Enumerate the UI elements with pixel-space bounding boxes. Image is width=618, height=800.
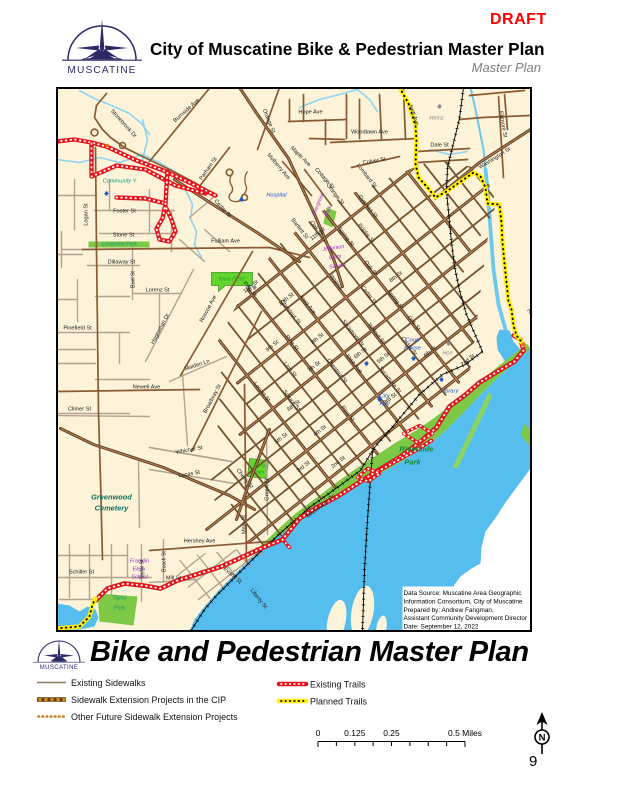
svg-text:Green St: Green St <box>265 478 271 501</box>
svg-text:Other Future Sidewalk Extensio: Other Future Sidewalk Extension Projects <box>71 712 238 722</box>
svg-text:Pinefield St: Pinefield St <box>63 326 92 332</box>
svg-text:Mill St: Mill St <box>166 576 182 582</box>
svg-text:Longview Park: Longview Park <box>102 242 138 248</box>
svg-text:Schiller St: Schiller St <box>69 570 95 576</box>
svg-text:Data Source: Muscatine Area Ge: Data Source: Muscatine Area Geographic <box>404 590 523 597</box>
svg-text:Dale St: Dale St <box>430 143 449 149</box>
svg-text:Sidewalk Extension Projects in: Sidewalk Extension Projects in the CIP <box>71 695 226 705</box>
svg-text:Lorenz St: Lorenz St <box>146 288 170 294</box>
svg-text:Library: Library <box>441 389 460 395</box>
svg-text:Logan St: Logan St <box>84 203 90 226</box>
svg-text:Park: Park <box>114 606 125 612</box>
svg-text:Cemetery: Cemetery <box>95 504 130 513</box>
svg-text:Heinz: Heinz <box>429 116 444 122</box>
svg-text:Climer St: Climer St <box>68 407 91 413</box>
svg-text:MUSCATINE: MUSCATINE <box>40 665 79 671</box>
svg-text:4th St: 4th St <box>253 464 266 470</box>
svg-text:Date: September 12, 2022: Date: September 12, 2022 <box>404 624 479 630</box>
svg-text:Taylor: Taylor <box>112 596 127 602</box>
svg-text:0: 0 <box>316 728 321 738</box>
svg-text:Community Y: Community Y <box>103 179 138 185</box>
svg-text:Foster St: Foster St <box>113 209 136 215</box>
svg-text:N: N <box>539 733 546 744</box>
svg-text:Woodlawn Ave: Woodlawn Ave <box>351 130 388 136</box>
svg-text:Existing Trails: Existing Trails <box>310 680 366 690</box>
svg-text:Park: Park <box>255 470 265 476</box>
svg-text:Hon: Hon <box>442 351 452 357</box>
svg-text:0.125: 0.125 <box>344 728 366 738</box>
svg-text:Main St: Main St <box>242 515 248 534</box>
svg-text:Prepared by: Andrew Fangman,: Prepared by: Andrew Fangman, <box>404 607 494 614</box>
svg-text:Taylor St: Taylor St <box>140 559 146 580</box>
svg-text:Planned Trails: Planned Trails <box>310 697 368 707</box>
svg-text:Buel St: Buel St <box>131 271 137 288</box>
svg-text:Stone St: Stone St <box>113 233 135 239</box>
svg-text:Park: Park <box>404 458 421 467</box>
svg-text:MUSCATINE: MUSCATINE <box>67 65 136 76</box>
svg-text:Information Consortium, City o: Information Consortium, City of Muscatin… <box>404 598 523 605</box>
svg-text:Riverside: Riverside <box>399 445 434 454</box>
svg-text:Dillaway St: Dillaway St <box>108 260 136 266</box>
svg-text:Busch St: Busch St <box>162 551 168 572</box>
svg-text:Newell Ave: Newell Ave <box>133 385 161 391</box>
svg-text:Assistant Community Developmen: Assistant Community Development Director <box>404 615 528 622</box>
svg-text:Iowa Field: Iowa Field <box>219 277 245 283</box>
svg-text:Fulliam Ave: Fulliam Ave <box>211 239 240 245</box>
svg-text:Hospital: Hospital <box>266 193 287 199</box>
svg-text:Hope Ave: Hope Ave <box>298 110 322 116</box>
svg-text:Greenwood: Greenwood <box>91 493 132 502</box>
svg-text:Hershey Ave: Hershey Ave <box>184 539 216 545</box>
svg-text:0.5 Miles: 0.5 Miles <box>448 728 482 738</box>
svg-text:0.25: 0.25 <box>383 728 400 738</box>
svg-text:Existing Sidewalks: Existing Sidewalks <box>71 678 146 688</box>
